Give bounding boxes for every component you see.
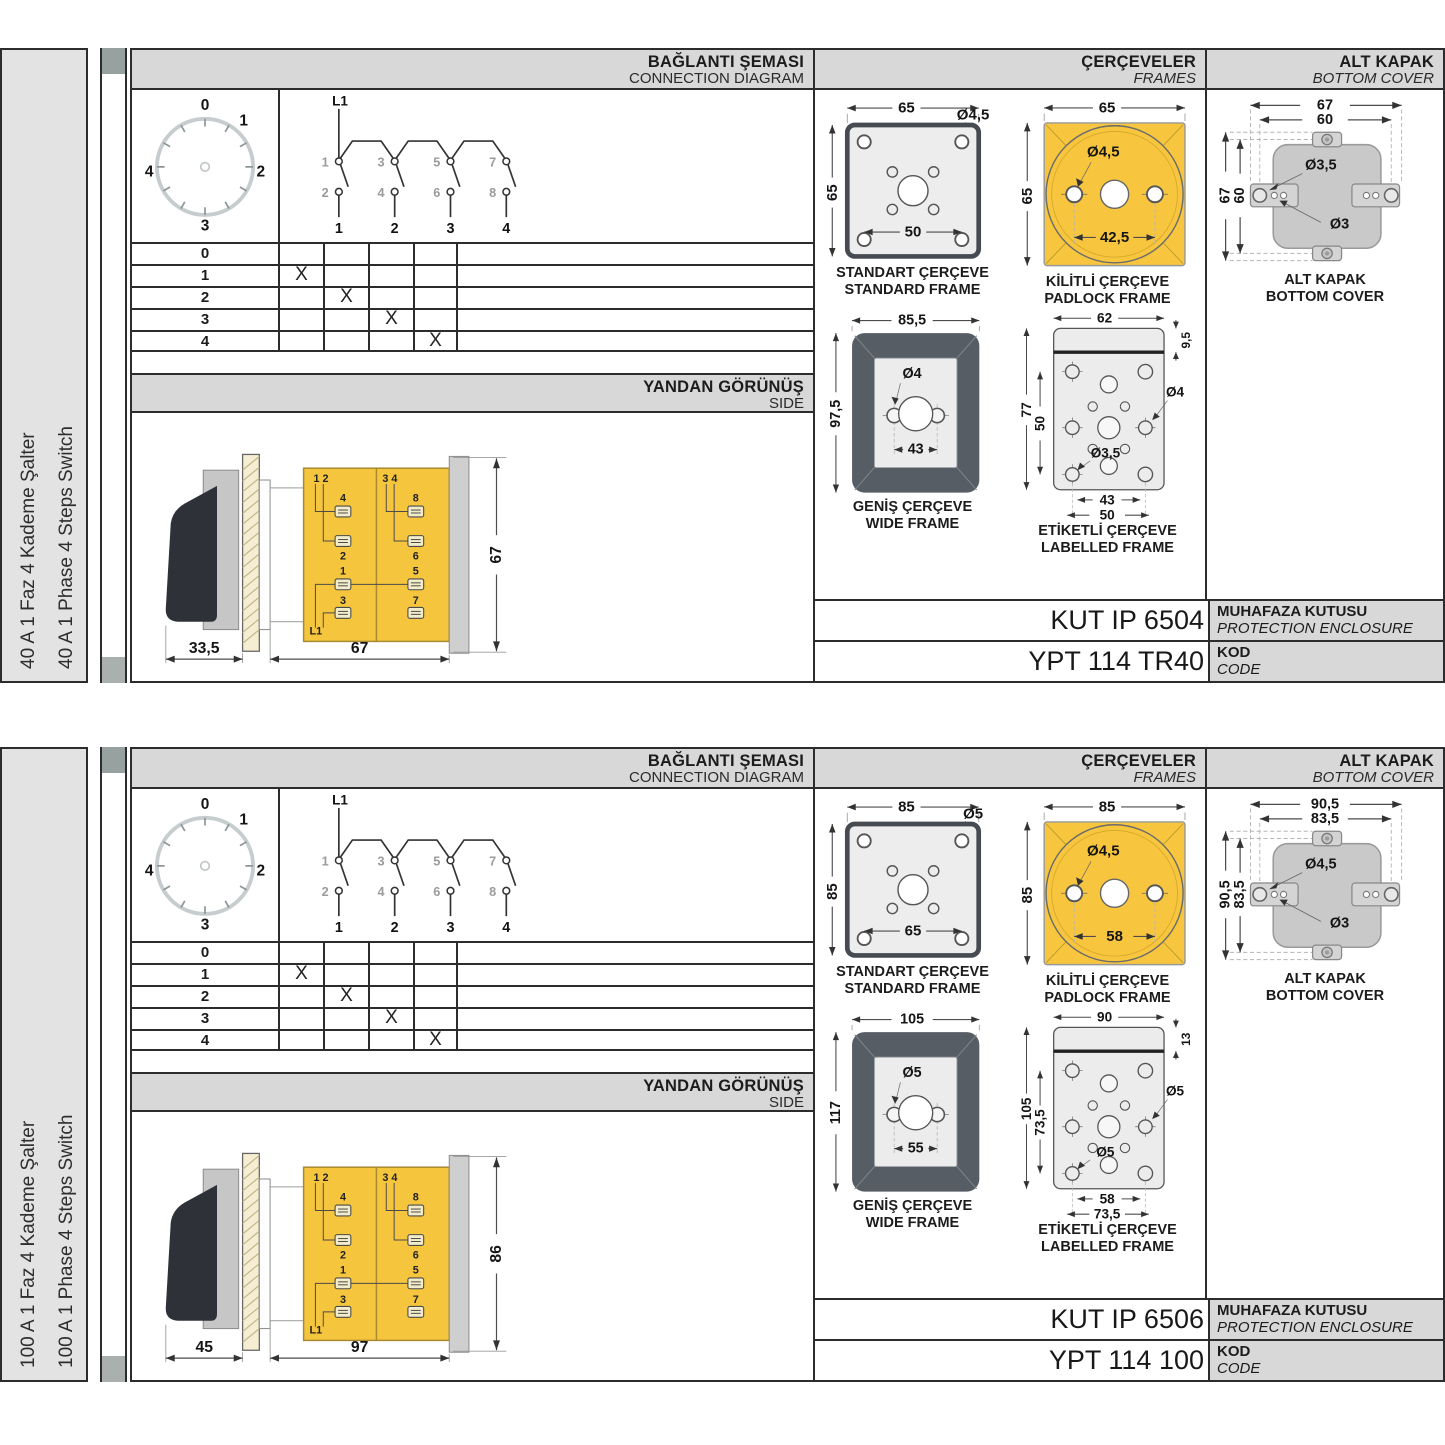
cover-title-tr: ALT KAPAK (1207, 53, 1434, 71)
switch-dial-figure: 0 1 2 3 4 (132, 792, 278, 938)
phase-label: L1 (332, 793, 348, 808)
dim-pitch-2: 73,5 (1093, 1207, 1120, 1221)
cover-figure-cell: 90,5 83,5 90,5 83,5 (1207, 789, 1443, 1005)
bottom-cover-figure: 67 60 67 60 (1213, 95, 1437, 271)
enclosure-code-label: MUHAFAZA KUTUSU PROTECTION ENCLOSURE (1208, 601, 1443, 640)
terminal-pair-right: 3 4 (382, 1172, 397, 1184)
switch-dial-cell: 0 1 2 3 4 (132, 789, 280, 941)
dim-height: 85 (823, 883, 840, 900)
dial-pos-2: 2 (257, 862, 266, 879)
dim-strip: 9,5 (1179, 332, 1193, 349)
wide-frame-cell: 85,5 97,5 Ø4 (815, 308, 1010, 557)
terminal-screw (335, 579, 351, 590)
svg-text:1: 1 (322, 854, 329, 868)
dim-height: 65 (1018, 188, 1035, 205)
svg-text:5: 5 (433, 155, 440, 169)
enclosure-code-label: MUHAFAZA KUTUSU PROTECTION ENCLOSURE (1208, 1300, 1443, 1339)
padlock-frame-figure: 85 85 (1016, 792, 1200, 972)
dim-width-inner: 83,5 (1311, 811, 1339, 827)
svg-text:1: 1 (335, 221, 343, 237)
dim-height: 117 (827, 1101, 843, 1124)
svg-text:3: 3 (340, 595, 346, 607)
product-name-en: 100 A 1 Phase 4 Steps Switch (56, 1114, 78, 1368)
dim-hole-small: Ø3 (1330, 217, 1349, 233)
cover-column: ALT KAPAK BOTTOM COVER 90,5 (1205, 749, 1443, 1298)
table-row: 1 X (132, 963, 813, 985)
svg-text:3: 3 (377, 854, 384, 868)
wide-frame-caption: GENİŞ ÇERÇEVE WIDE FRAME (853, 1198, 972, 1232)
svg-text:4: 4 (377, 186, 384, 200)
frames-header: ÇERÇEVELER FRAMES (815, 50, 1205, 90)
terminal-pair-left: 1 2 (313, 473, 328, 485)
terminal-screw (408, 1278, 424, 1289)
padlock-frame-figure: 65 65 (1016, 93, 1200, 273)
edge-accent-square-bottom (102, 1356, 125, 1382)
frames-column: ÇERÇEVELER FRAMES 65 Ø4,5 (815, 50, 1205, 599)
dim-strip: 13 (1179, 1032, 1193, 1046)
dim-handle-depth: 45 (195, 1339, 213, 1356)
product-name-en: 40 A 1 Phase 4 Steps Switch (56, 426, 78, 669)
dial-pos-1: 1 (239, 113, 248, 130)
frames-column: ÇERÇEVELER FRAMES 85 Ø5 (815, 749, 1205, 1298)
dim-width: 65 (898, 100, 915, 117)
dial-pos-0: 0 (201, 97, 210, 114)
side-view-title-tr: YANDAN GÖRÜNÜŞ (132, 1077, 804, 1095)
dim-hole-left: Ø3,5 (1090, 445, 1120, 460)
dim-hole: Ø4,5 (956, 106, 989, 123)
padlock-frame-caption: KİLİTLİ ÇERÇEVE PADLOCK FRAME (1044, 274, 1170, 308)
product-side-strip: 100 A 1 Faz 4 Kademe Şalter 100 A 1 Phas… (0, 747, 88, 1382)
table-row: 2 X (132, 286, 813, 308)
switch-dial-figure: 0 1 2 3 4 (132, 93, 278, 239)
dim-pitch: 65 (904, 923, 921, 940)
dim-height: 65 (823, 184, 840, 201)
dim-width: 85 (898, 799, 915, 816)
cover-header: ALT KAPAK BOTTOM COVER (1207, 749, 1443, 789)
standard-frame-cell: 65 Ø4,5 65 (815, 93, 1010, 308)
pole-1: 1 2 1 (322, 854, 349, 936)
side-view-header: YANDAN GÖRÜNÜŞ SIDE (132, 373, 813, 413)
binding-edge-strip (100, 747, 127, 1382)
labelled-frame-figure: 62 9,5 77 50 (1018, 308, 1198, 522)
frames-grid: 65 Ø4,5 65 (815, 90, 1205, 557)
enclosure-code: KUT IP 6506 (815, 1300, 1208, 1339)
dial-pos-4: 4 (145, 163, 154, 180)
connection-column: BAĞLANTI ŞEMASI CONNECTION DIAGRAM 0 1 2… (132, 749, 815, 1380)
dim-hole: Ø4,5 (1087, 843, 1120, 860)
dim-body-height: 86 (488, 1245, 505, 1263)
dim-width: 90 (1097, 1010, 1112, 1025)
svg-text:3: 3 (377, 155, 384, 169)
terminal-screw (335, 607, 351, 618)
pole-3: 5 6 3 (433, 854, 460, 936)
panel-main: BAĞLANTI ŞEMASI CONNECTION DIAGRAM 0 1 2… (130, 747, 1445, 1382)
cover-caption: ALT KAPAK BOTTOM COVER (1266, 272, 1384, 306)
side-view-figure: 1 2 3 4 L1 4 2 1 3 8 6 (140, 1118, 790, 1366)
dim-pitch: 43 (907, 442, 923, 458)
pole-4: 7 8 4 (489, 155, 516, 237)
terminal-screw (408, 1205, 424, 1216)
enclosure-code: KUT IP 6504 (815, 601, 1208, 640)
dial-pos-3: 3 (201, 916, 210, 933)
svg-text:1: 1 (335, 920, 343, 936)
edge-accent-square-top (102, 48, 125, 74)
svg-text:8: 8 (489, 885, 496, 899)
svg-text:7: 7 (413, 1294, 419, 1306)
svg-text:7: 7 (489, 155, 496, 169)
cover-header: ALT KAPAK BOTTOM COVER (1207, 50, 1443, 90)
table-row: 4 X (132, 1029, 813, 1051)
edge-accent-square-top (102, 747, 125, 773)
dim-hole-pitch-v: 73,5 (1032, 1109, 1047, 1136)
cover-figure-cell: 67 60 67 60 (1207, 90, 1443, 306)
connection-schematic: L1 1 2 1 3 (288, 92, 580, 240)
frames-title-tr: ÇERÇEVELER (815, 53, 1196, 71)
dim-pitch: 58 (1106, 928, 1123, 945)
connection-title-tr: BAĞLANTI ŞEMASI (132, 53, 804, 71)
shaft-housing (270, 488, 303, 622)
wide-frame-caption: GENİŞ ÇERÇEVE WIDE FRAME (853, 499, 972, 533)
svg-text:2: 2 (391, 920, 399, 936)
terminal-pair-right: 3 4 (382, 473, 397, 485)
dim-hole-small: Ø3 (1330, 916, 1349, 932)
table-row: 3 X (132, 308, 813, 330)
dim-width: 85,5 (898, 313, 926, 329)
schematic-cell: L1 1 2 1 3 (280, 789, 813, 941)
dim-hole-left: Ø5 (1096, 1144, 1115, 1159)
dim-hole: Ø5 (902, 1065, 921, 1081)
dim-hole-big: Ø4,5 (1305, 857, 1336, 873)
product-name-tr: 100 A 1 Faz 4 Kademe Şalter (18, 1121, 40, 1368)
terminal-screw (335, 1306, 351, 1317)
product-code: YPT 114 TR40 (815, 642, 1208, 681)
table-row: 0 (132, 941, 813, 963)
labelled-frame-figure: 90 13 105 73,5 (1018, 1007, 1198, 1221)
wide-frame-figure: 105 117 Ø5 (825, 1007, 1001, 1197)
dim-pitch-1: 43 (1099, 492, 1115, 507)
side-view-figure: 1 2 3 4 L1 4 2 1 3 8 6 (140, 419, 790, 667)
terminal-screw (408, 1306, 424, 1317)
dim-hole: Ø4,5 (1087, 144, 1120, 161)
frames-title-tr: ÇERÇEVELER (815, 752, 1196, 770)
dial-pos-1: 1 (239, 812, 248, 829)
svg-text:4: 4 (340, 1192, 346, 1204)
phase-label: L1 (332, 94, 348, 109)
standard-frame-figure: 65 Ø4,5 65 (821, 93, 1005, 264)
dim-hole: Ø4 (902, 366, 921, 382)
cover-title-en: BOTTOM COVER (1207, 71, 1434, 87)
labelled-frame-caption: ETİKETLİ ÇERÇEVE LABELLED FRAME (1038, 1222, 1177, 1256)
side-view-title-en: SIDE (132, 396, 804, 412)
edge-accent-square-bottom (102, 657, 125, 683)
wide-frame-figure: 85,5 97,5 Ø4 (825, 308, 1001, 498)
dim-hole-right: Ø4 (1166, 384, 1185, 399)
cover-column: ALT KAPAK BOTTOM COVER 67 (1205, 50, 1443, 599)
dial-pos-2: 2 (257, 163, 266, 180)
svg-text:2: 2 (391, 221, 399, 237)
catalog-page: 40 A 1 Faz 4 Kademe Şalter 40 A 1 Phase … (0, 48, 1445, 1382)
terminal-screw (408, 579, 424, 590)
terminal-screw (408, 607, 424, 618)
side-view-area: 1 2 3 4 L1 4 2 1 3 8 6 (132, 1112, 813, 1380)
terminal-screw (335, 1235, 351, 1246)
dim-body-height: 67 (488, 546, 505, 564)
frames-title-en: FRAMES (815, 71, 1196, 87)
svg-text:1: 1 (340, 565, 346, 577)
enclosure-code-row: KUT IP 6504 MUHAFAZA KUTUSU PROTECTION E… (815, 599, 1443, 640)
dim-pitch-1: 58 (1099, 1191, 1115, 1206)
dial-pos-3: 3 (201, 217, 210, 234)
dim-pitch-2: 50 (1099, 508, 1114, 522)
labelled-frame-caption: ETİKETLİ ÇERÇEVE LABELLED FRAME (1038, 523, 1177, 557)
dim-height: 85 (1018, 887, 1035, 904)
svg-text:6: 6 (413, 551, 419, 563)
pole-3: 5 6 3 (433, 155, 460, 237)
diagram-row: 0 1 2 3 4 L1 (132, 789, 813, 941)
switch-handle (166, 1185, 217, 1321)
shaft-housing (270, 1187, 303, 1321)
product-code-row: YPT 114 100 KOD CODE (815, 1339, 1443, 1380)
svg-text:5: 5 (413, 1264, 419, 1276)
dim-width: 85 (1098, 798, 1115, 815)
terminal-screw (408, 536, 424, 547)
right-columns: ÇERÇEVELER FRAMES 65 Ø4,5 (815, 50, 1443, 681)
dial-pos-4: 4 (145, 862, 154, 879)
terminal-screw (408, 506, 424, 517)
connection-column: BAĞLANTI ŞEMASI CONNECTION DIAGRAM 0 1 2… (132, 50, 815, 681)
svg-text:3: 3 (446, 221, 454, 237)
dim-pitch: 50 (904, 224, 921, 241)
side-view-title-en: SIDE (132, 1095, 804, 1111)
panel-plate (243, 1153, 260, 1350)
svg-text:4: 4 (340, 493, 346, 505)
table-row: 1 X (132, 264, 813, 286)
front-plate (259, 1179, 270, 1329)
front-plate (259, 480, 270, 630)
panel-main: BAĞLANTI ŞEMASI CONNECTION DIAGRAM 0 1 2… (130, 48, 1445, 683)
dim-width-inner: 60 (1317, 112, 1333, 128)
dim-hole-right: Ø5 (1166, 1083, 1185, 1098)
dim-height: 77 (1018, 402, 1033, 417)
svg-text:1: 1 (322, 155, 329, 169)
standard-frame-caption: STANDART ÇERÇEVE STANDARD FRAME (836, 964, 989, 998)
svg-text:1: 1 (340, 1264, 346, 1276)
dim-width: 65 (1098, 99, 1115, 116)
svg-text:4: 4 (502, 920, 510, 936)
product-name-tr: 40 A 1 Faz 4 Kademe Şalter (18, 432, 40, 669)
product-code-row: YPT 114 TR40 KOD CODE (815, 640, 1443, 681)
dim-hole: Ø5 (963, 805, 983, 822)
product-code-label: KOD CODE (1208, 642, 1443, 681)
dim-hole-big: Ø3,5 (1305, 158, 1336, 174)
dim-body-depth: 97 (351, 1339, 369, 1356)
side-view-title-tr: YANDAN GÖRÜNÜŞ (132, 378, 804, 396)
connection-title-en: CONNECTION DIAGRAM (132, 71, 804, 87)
svg-text:3: 3 (446, 920, 454, 936)
pole-2: 3 4 2 (377, 854, 404, 936)
svg-text:2: 2 (340, 551, 346, 563)
table-row: 0 (132, 242, 813, 264)
svg-text:6: 6 (413, 1250, 419, 1262)
dim-height: 97,5 (827, 400, 843, 428)
dim-body-depth: 67 (351, 640, 369, 657)
terminal-screw (408, 1235, 424, 1246)
table-row: 2 X (132, 985, 813, 1007)
pole-4: 7 8 4 (489, 854, 516, 936)
rear-plate (449, 1155, 469, 1352)
svg-text:6: 6 (433, 186, 440, 200)
frames-grid: 85 Ø5 85 (815, 789, 1205, 1256)
svg-text:7: 7 (489, 854, 496, 868)
dim-height-inner: 83,5 (1232, 880, 1248, 908)
product-code-label: KOD CODE (1208, 1341, 1443, 1380)
step-table: 0 1 X 2 X (132, 242, 813, 352)
labelled-frame-cell: 62 9,5 77 50 (1010, 308, 1205, 557)
switch-handle (166, 486, 217, 622)
svg-text:7: 7 (413, 595, 419, 607)
cover-title-en: BOTTOM COVER (1207, 770, 1434, 786)
svg-text:3: 3 (340, 1294, 346, 1306)
frames-header: ÇERÇEVELER FRAMES (815, 749, 1205, 789)
standard-frame-cell: 85 Ø5 85 (815, 792, 1010, 1007)
dial-center-hole (201, 163, 210, 172)
svg-text:5: 5 (433, 854, 440, 868)
pole-2: 3 4 2 (377, 155, 404, 237)
svg-text:5: 5 (413, 565, 419, 577)
svg-text:2: 2 (322, 186, 329, 200)
svg-text:8: 8 (489, 186, 496, 200)
connection-title-en: CONNECTION DIAGRAM (132, 770, 804, 786)
dial-pos-0: 0 (201, 796, 210, 813)
product-panel: 100 A 1 Faz 4 Kademe Şalter 100 A 1 Phas… (0, 747, 1445, 1382)
side-view-header: YANDAN GÖRÜNÜŞ SIDE (132, 1072, 813, 1112)
rear-plate (449, 456, 469, 653)
dim-pitch: 55 (907, 1141, 923, 1157)
svg-text:2: 2 (322, 885, 329, 899)
standard-frame-figure: 85 Ø5 85 (821, 792, 1005, 963)
terminal-phase: L1 (310, 626, 323, 638)
product-code: YPT 114 100 (815, 1341, 1208, 1380)
svg-text:8: 8 (413, 1192, 419, 1204)
dial-center-hole (201, 862, 210, 871)
svg-text:2: 2 (340, 1250, 346, 1262)
labelled-frame-cell: 90 13 105 73,5 (1010, 1007, 1205, 1256)
svg-text:8: 8 (413, 493, 419, 505)
standard-frame-caption: STANDART ÇERÇEVE STANDARD FRAME (836, 265, 989, 299)
connection-schematic: L1 1 2 1 3 (288, 791, 580, 939)
dim-handle-depth: 33,5 (189, 640, 220, 657)
diagram-row: 0 1 2 3 4 L1 (132, 90, 813, 242)
right-columns: ÇERÇEVELER FRAMES 85 Ø5 (815, 749, 1443, 1380)
svg-text:4: 4 (502, 221, 510, 237)
terminal-screw (335, 1205, 351, 1216)
wide-frame-cell: 105 117 Ø5 (815, 1007, 1010, 1256)
terminal-screw (335, 536, 351, 547)
connection-header: BAĞLANTI ŞEMASI CONNECTION DIAGRAM (132, 749, 813, 789)
dim-hole-pitch-v: 50 (1032, 416, 1047, 431)
dim-width: 62 (1097, 311, 1113, 326)
terminal-pair-left: 1 2 (313, 1172, 328, 1184)
dim-height-inner: 60 (1232, 187, 1248, 203)
binding-edge-strip (100, 48, 127, 683)
switch-dial-cell: 0 1 2 3 4 (132, 90, 280, 242)
svg-text:4: 4 (377, 885, 384, 899)
cover-title-tr: ALT KAPAK (1207, 752, 1434, 770)
padlock-frame-caption: KİLİTLİ ÇERÇEVE PADLOCK FRAME (1044, 973, 1170, 1007)
side-view-area: 1 2 3 4 L1 4 2 1 3 8 6 (132, 413, 813, 681)
table-row: 4 X (132, 330, 813, 352)
dim-width: 105 (900, 1012, 924, 1028)
cover-caption: ALT KAPAK BOTTOM COVER (1266, 971, 1384, 1005)
terminal-screw (335, 1278, 351, 1289)
connection-header: BAĞLANTI ŞEMASI CONNECTION DIAGRAM (132, 50, 813, 90)
product-panel: 40 A 1 Faz 4 Kademe Şalter 40 A 1 Phase … (0, 48, 1445, 683)
product-side-strip: 40 A 1 Faz 4 Kademe Şalter 40 A 1 Phase … (0, 48, 88, 683)
padlock-frame-cell: 85 85 (1010, 792, 1205, 1007)
dim-pitch: 42,5 (1099, 229, 1128, 246)
bottom-cover-figure: 90,5 83,5 90,5 83,5 (1213, 794, 1437, 970)
enclosure-code-row: KUT IP 6506 MUHAFAZA KUTUSU PROTECTION E… (815, 1298, 1443, 1339)
step-table: 0 1 X 2 X (132, 941, 813, 1051)
svg-text:6: 6 (433, 885, 440, 899)
padlock-frame-cell: 65 65 (1010, 93, 1205, 308)
panel-plate (243, 454, 260, 651)
connection-title-tr: BAĞLANTI ŞEMASI (132, 752, 804, 770)
schematic-cell: L1 1 2 1 3 (280, 90, 813, 242)
pole-1: 1 2 1 (322, 155, 349, 237)
terminal-screw (335, 506, 351, 517)
frames-title-en: FRAMES (815, 770, 1196, 786)
table-row: 3 X (132, 1007, 813, 1029)
terminal-phase: L1 (310, 1325, 323, 1337)
